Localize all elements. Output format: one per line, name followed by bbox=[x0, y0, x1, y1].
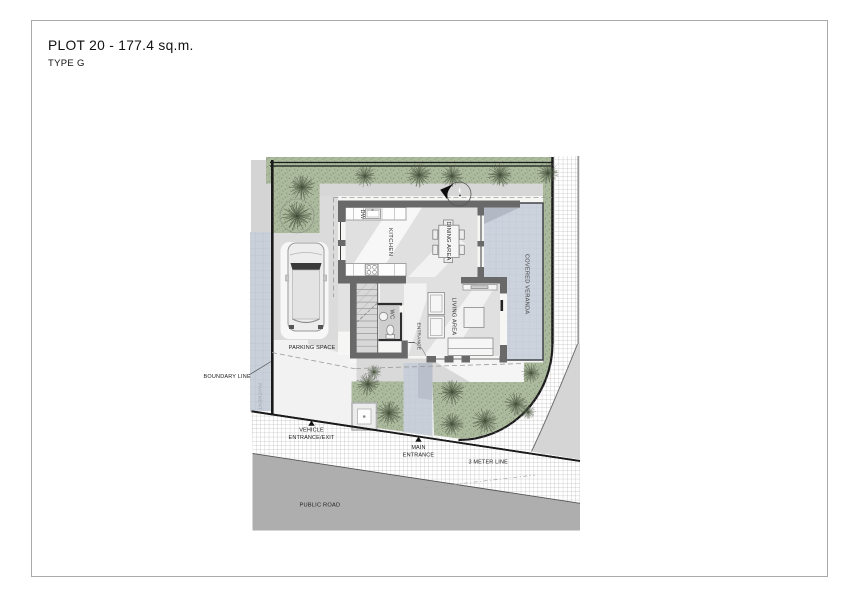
svg-text:MAIN: MAIN bbox=[411, 445, 425, 451]
svg-text:ENTRANCE: ENTRANCE bbox=[416, 323, 422, 351]
svg-text:WC: WC bbox=[389, 310, 395, 320]
svg-text:PUBLIC ROAD: PUBLIC ROAD bbox=[300, 503, 341, 509]
svg-text:PLOT 20 - 177.4 sq.m.: PLOT 20 - 177.4 sq.m. bbox=[48, 38, 194, 53]
svg-text:VEHICLE: VEHICLE bbox=[299, 428, 324, 434]
svg-text:COVERED VERANDA: COVERED VERANDA bbox=[524, 254, 530, 314]
svg-text:3 METER LINE: 3 METER LINE bbox=[469, 460, 509, 466]
svg-text:PAVEMENT: PAVEMENT bbox=[258, 383, 263, 410]
svg-text:DINING AREA: DINING AREA bbox=[445, 222, 451, 261]
svg-text:TYPE G: TYPE G bbox=[48, 58, 85, 69]
svg-text:DW: DW bbox=[359, 210, 365, 220]
svg-text:ENTRANCE/EXIT: ENTRANCE/EXIT bbox=[289, 435, 335, 441]
svg-text:KITCHEN: KITCHEN bbox=[387, 228, 393, 256]
svg-text:LIVING AREA: LIVING AREA bbox=[451, 298, 457, 336]
svg-text:ENTRANCE: ENTRANCE bbox=[403, 452, 435, 458]
svg-text:PARKING SPACE: PARKING SPACE bbox=[289, 345, 336, 351]
svg-text:BOUNDARY LINE: BOUNDARY LINE bbox=[204, 374, 251, 380]
